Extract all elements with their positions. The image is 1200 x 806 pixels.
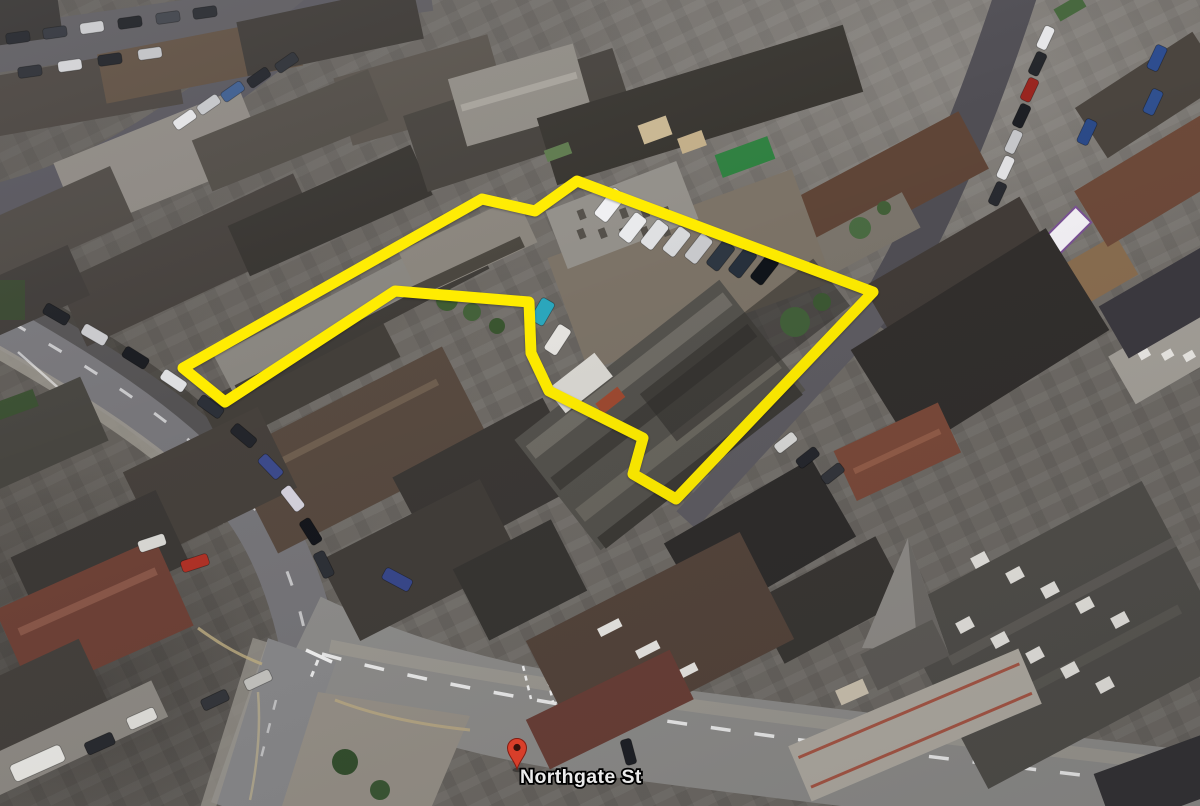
pin-body[interactable] [508, 739, 527, 770]
aerial-scene: Northgate St [0, 0, 1200, 806]
aerial-map-view[interactable]: Northgate St [0, 0, 1200, 806]
street-name-label: Northgate St [520, 766, 642, 788]
pin-hole [513, 744, 520, 751]
